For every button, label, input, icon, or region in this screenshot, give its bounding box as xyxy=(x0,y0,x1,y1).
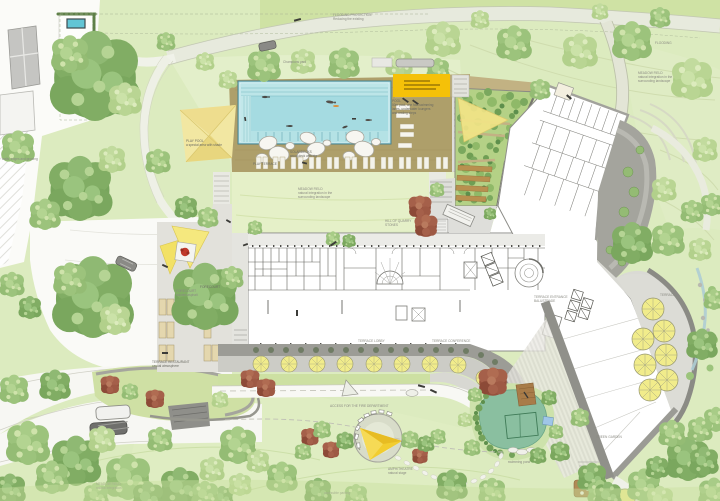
svg-text:STONES: STONES xyxy=(385,223,398,227)
svg-text:TERRACE CONFERENCE: TERRACE CONFERENCE xyxy=(432,339,470,343)
svg-text:TERRACE LOBBY: TERRACE LOBBY xyxy=(358,339,386,343)
svg-text:Champions yard: Champions yard xyxy=(283,60,306,64)
svg-text:casual atmosphere: casual atmosphere xyxy=(152,364,179,368)
svg-text:GREEN GARDEN: GREEN GARDEN xyxy=(596,435,623,439)
svg-text:PLAY TERRACE: PLAY TERRACE xyxy=(253,162,277,166)
svg-text:Reducing the existing: Reducing the existing xyxy=(333,17,364,21)
svg-text:and resting steps: and resting steps xyxy=(392,111,417,115)
svg-text:FORECOURT: FORECOURT xyxy=(200,285,220,289)
svg-text:colored asphalt: colored asphalt xyxy=(176,293,198,297)
svg-text:a special area with shade: a special area with shade xyxy=(186,143,222,147)
svg-text:wood deck with big: wood deck with big xyxy=(290,154,317,158)
svg-text:surrounding landscape: surrounding landscape xyxy=(638,79,670,83)
svg-text:natural stage: natural stage xyxy=(388,471,407,475)
svg-text:BALUSTRADE: BALUSTRADE xyxy=(534,299,555,303)
svg-text:walls, edges and growing: walls, edges and growing xyxy=(2,157,38,161)
svg-text:FLOODING: FLOODING xyxy=(655,41,672,45)
svg-text:surrounding landscape: surrounding landscape xyxy=(298,195,330,199)
svg-text:ACCESS FOR THE FIRE DEPARTMENT: ACCESS FOR THE FIRE DEPARTMENT xyxy=(330,404,389,408)
svg-text:TERRACE: TERRACE xyxy=(660,293,675,297)
svg-text:swimming pond: swimming pond xyxy=(508,460,530,464)
